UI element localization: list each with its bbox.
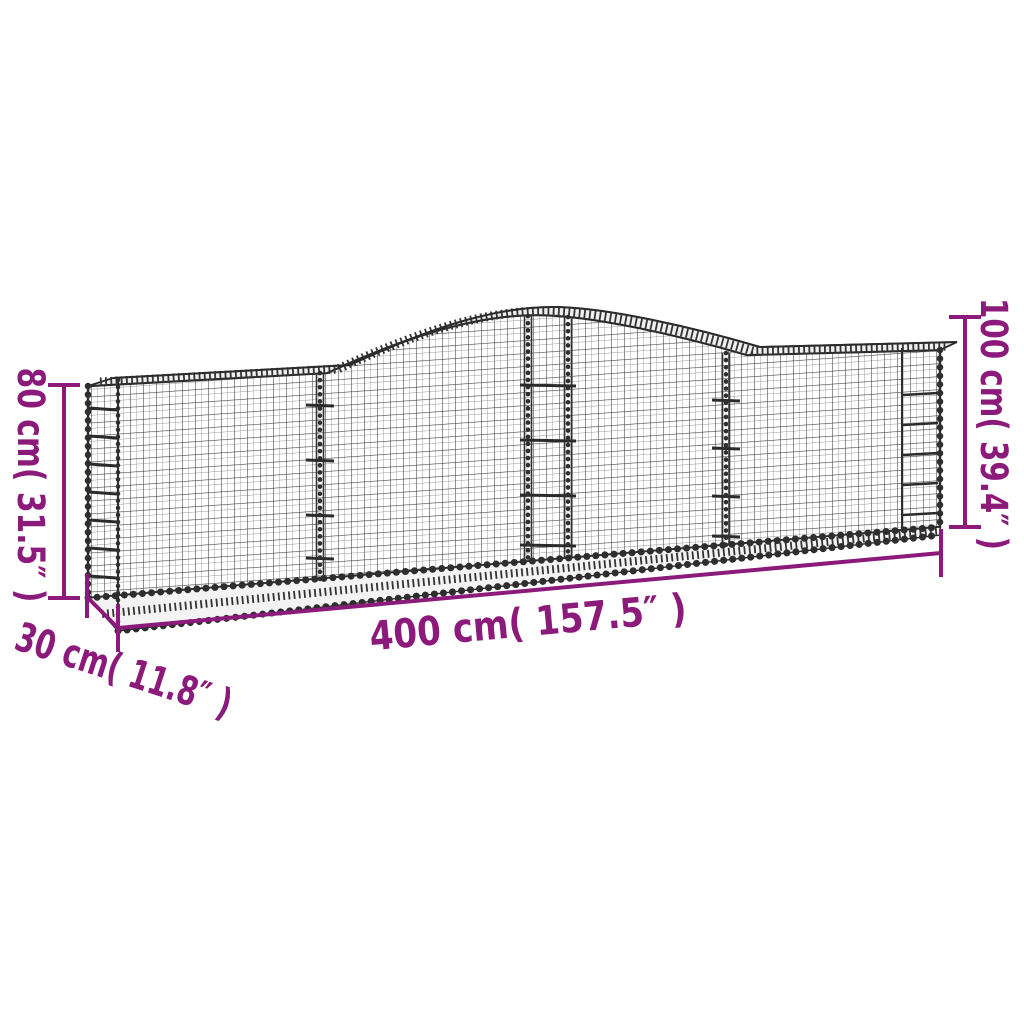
height-right-label: 100 cm( 39.4″ ): [972, 298, 1015, 550]
mesh-front-face: [88, 315, 940, 598]
product-dimension-diagram: 80 cm( 31.5″ ) 100 cm( 39.4″ ) 400 cm( 1…: [0, 0, 1024, 1024]
gabion-basket: [88, 307, 957, 631]
depth-label: 30 cm( 11.8″ ): [10, 614, 238, 727]
gabion-diagram-svg: 80 cm( 31.5″ ) 100 cm( 39.4″ ) 400 cm( 1…: [0, 0, 1024, 1024]
height-left-label: 80 cm( 31.5″ ): [9, 368, 52, 603]
